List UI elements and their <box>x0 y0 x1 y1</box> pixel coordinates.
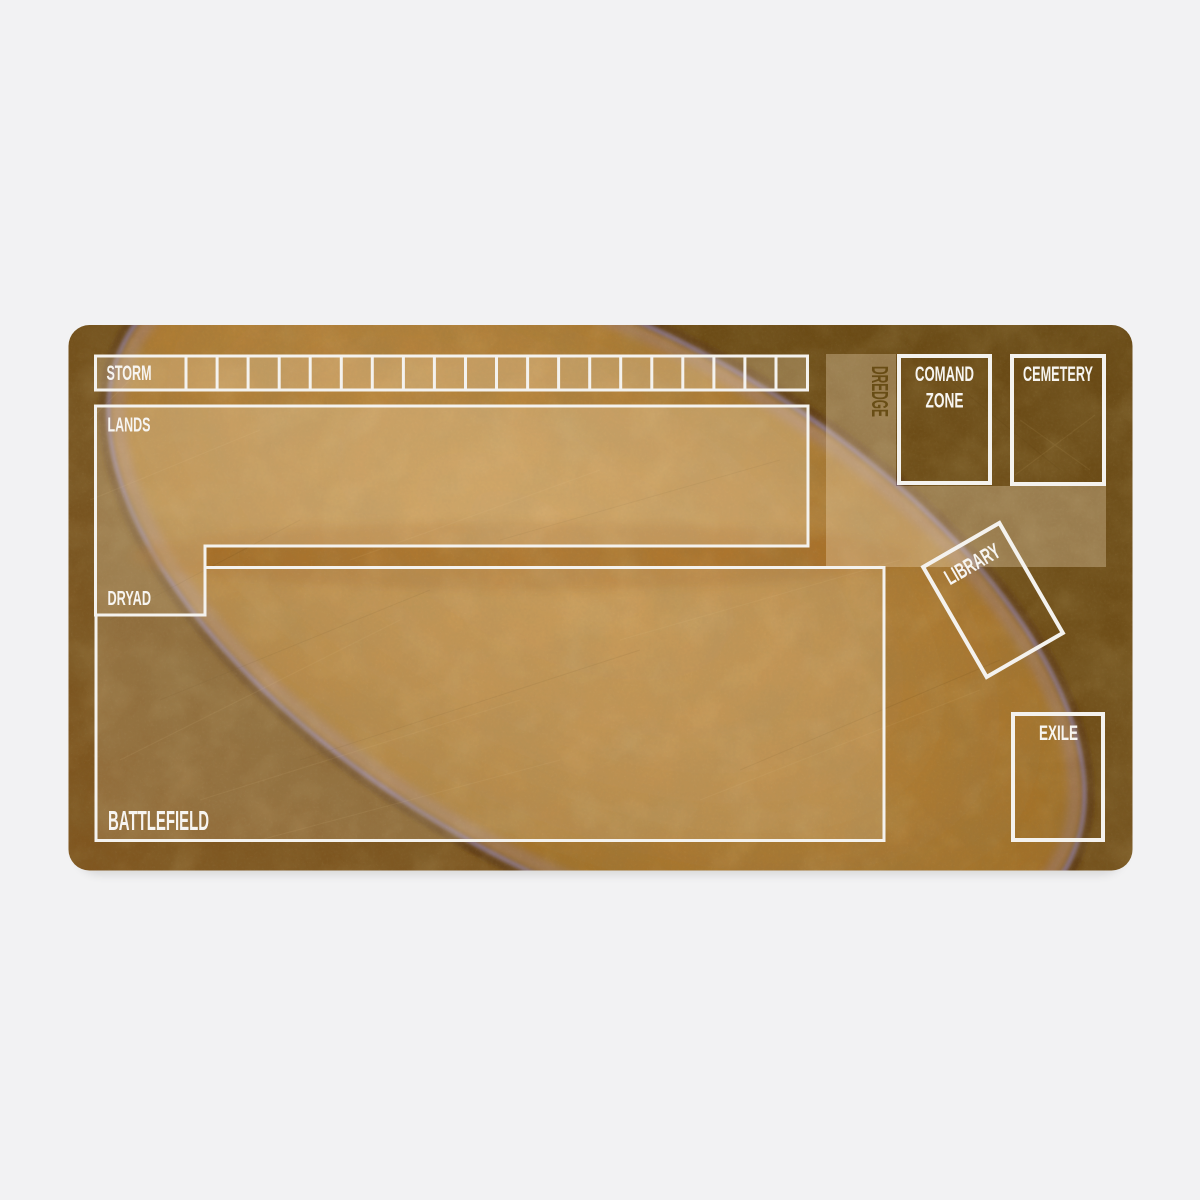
svg-text:DRYAD: DRYAD <box>108 588 152 610</box>
svg-text:EXILE: EXILE <box>1039 721 1078 745</box>
svg-text:DREDGE: DREDGE <box>867 366 893 417</box>
svg-text:CEMETERY: CEMETERY <box>1023 363 1093 386</box>
svg-text:LANDS: LANDS <box>108 415 151 437</box>
svg-text:COMAND: COMAND <box>915 363 974 386</box>
svg-text:ZONE: ZONE <box>926 390 964 413</box>
svg-text:STORM: STORM <box>107 362 152 385</box>
svg-text:BATTLEFIELD: BATTLEFIELD <box>108 805 209 836</box>
